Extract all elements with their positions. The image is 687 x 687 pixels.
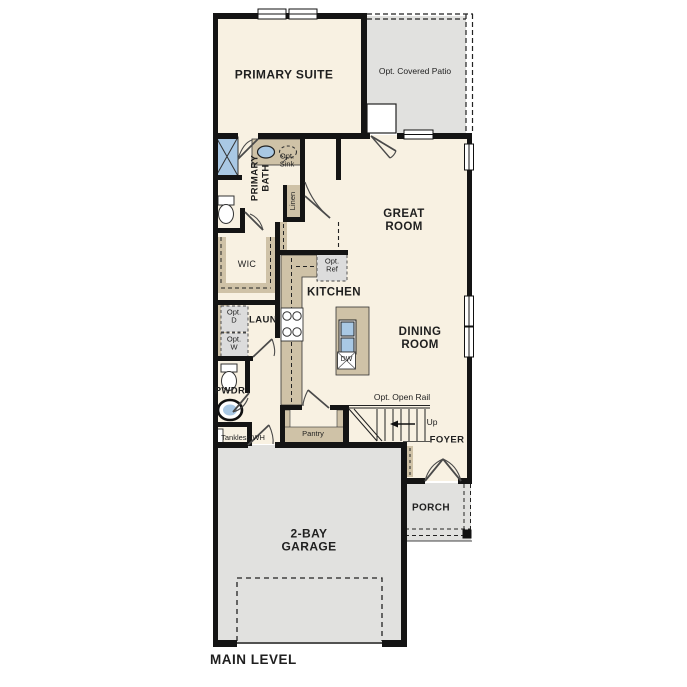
window — [289, 9, 317, 19]
label-tankless-wh: Tankless WH — [220, 434, 266, 442]
label-dishwasher: DW — [335, 356, 359, 364]
label-wic: WIC — [227, 259, 267, 269]
label-kitchen: KITCHEN — [289, 287, 379, 300]
label-primary-bath: PRIMARY BATH — [250, 151, 271, 205]
label-opt-open-rail: Opt. Open Rail — [347, 393, 457, 403]
label-laundry: LAUN — [238, 316, 288, 327]
label-primary-suite: PRIMARY SUITE — [234, 68, 334, 81]
label-porch: PORCH — [401, 502, 461, 513]
label-opt-ref: Opt. Ref — [319, 258, 345, 275]
window — [465, 296, 474, 326]
label-up: Up — [420, 418, 444, 428]
floor-plan: PRIMARY SUITE Opt. Covered Patio GREAT R… — [0, 0, 687, 687]
shower — [216, 137, 238, 176]
label-opt-washer: Opt. W — [224, 336, 244, 353]
label-foyer: FOYER — [417, 436, 477, 447]
label-pantry: Pantry — [288, 430, 338, 438]
label-powder: PWDR — [205, 387, 255, 398]
foyer-chase — [407, 446, 413, 477]
label-dining-room: DINING ROOM — [388, 326, 452, 352]
patio-post — [367, 104, 396, 133]
label-opt-covered-patio: Opt. Covered Patio — [350, 67, 480, 77]
window — [404, 130, 433, 139]
toilet-primary — [218, 196, 234, 224]
kitchen-island — [336, 307, 369, 375]
plan-title: MAIN LEVEL — [210, 652, 297, 667]
label-great-room: GREAT ROOM — [372, 208, 436, 234]
window — [258, 9, 286, 19]
window — [465, 327, 474, 357]
label-opt-sink: Opt. Sink — [273, 153, 301, 170]
label-linen: Linen — [289, 181, 297, 221]
window — [465, 144, 474, 170]
porch-column — [463, 530, 472, 539]
floor-plan-drawing — [0, 0, 687, 687]
label-garage: 2-BAY GARAGE — [267, 528, 351, 555]
label-opt-dryer: Opt. D — [224, 309, 244, 326]
